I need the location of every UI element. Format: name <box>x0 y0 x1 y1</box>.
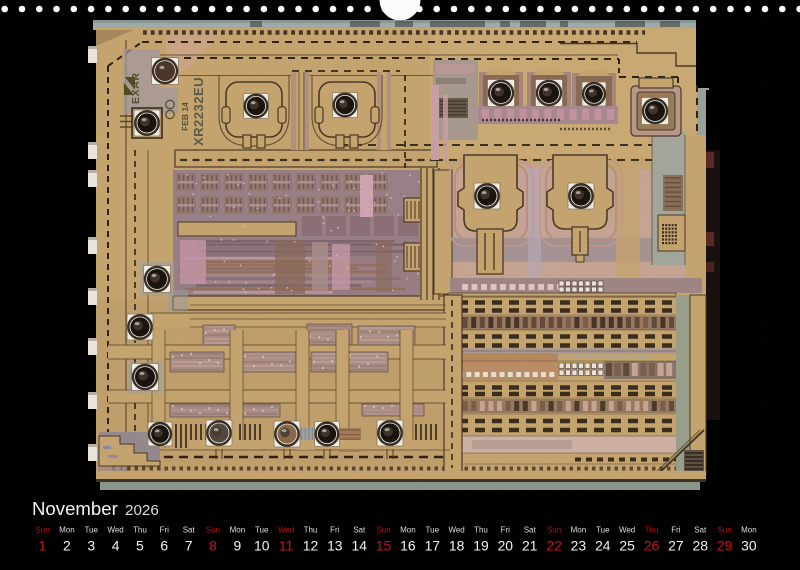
svg-text:Thu: Thu <box>133 526 147 535</box>
svg-text:9: 9 <box>234 538 242 554</box>
svg-text:8: 8 <box>209 538 217 554</box>
svg-text:Wed: Wed <box>107 526 123 535</box>
svg-text:Sun: Sun <box>717 526 731 535</box>
svg-text:25: 25 <box>619 538 635 554</box>
svg-text:12: 12 <box>303 538 319 554</box>
svg-text:26: 26 <box>644 538 660 554</box>
svg-text:14: 14 <box>351 538 367 554</box>
svg-text:Mon: Mon <box>230 526 246 535</box>
svg-text:November: November <box>32 498 118 519</box>
svg-text:16: 16 <box>400 538 416 554</box>
svg-text:Mon: Mon <box>741 526 757 535</box>
svg-text:Sun: Sun <box>547 526 561 535</box>
svg-text:28: 28 <box>692 538 708 554</box>
svg-text:Sat: Sat <box>183 526 196 535</box>
svg-text:Tue: Tue <box>426 526 440 535</box>
svg-text:Sun: Sun <box>376 526 390 535</box>
svg-text:4: 4 <box>112 538 120 554</box>
svg-text:18: 18 <box>449 538 465 554</box>
svg-text:Wed: Wed <box>278 526 294 535</box>
svg-text:Sat: Sat <box>694 526 707 535</box>
svg-text:Wed: Wed <box>619 526 635 535</box>
svg-text:19: 19 <box>473 538 489 554</box>
svg-text:Thu: Thu <box>304 526 318 535</box>
svg-text:7: 7 <box>185 538 193 554</box>
svg-text:Mon: Mon <box>571 526 587 535</box>
svg-text:6: 6 <box>160 538 168 554</box>
svg-text:2: 2 <box>63 538 71 554</box>
svg-text:5: 5 <box>136 538 144 554</box>
svg-text:21: 21 <box>522 538 538 554</box>
svg-text:Tue: Tue <box>596 526 610 535</box>
svg-text:11: 11 <box>279 538 294 554</box>
svg-text:13: 13 <box>327 538 343 554</box>
svg-text:Sun: Sun <box>206 526 220 535</box>
svg-text:23: 23 <box>571 538 587 554</box>
svg-text:Fri: Fri <box>160 526 170 535</box>
svg-text:Fri: Fri <box>671 526 681 535</box>
svg-text:3: 3 <box>87 538 95 554</box>
svg-text:24: 24 <box>595 538 611 554</box>
svg-text:Mon: Mon <box>59 526 75 535</box>
svg-text:30: 30 <box>741 538 757 554</box>
svg-text:10: 10 <box>254 538 270 554</box>
svg-text:Sun: Sun <box>35 526 49 535</box>
svg-text:Fri: Fri <box>330 526 340 535</box>
svg-text:Tue: Tue <box>255 526 269 535</box>
svg-text:Sat: Sat <box>353 526 366 535</box>
svg-text:1: 1 <box>39 538 47 554</box>
svg-text:22: 22 <box>546 538 562 554</box>
svg-text:2026: 2026 <box>125 502 159 519</box>
svg-text:29: 29 <box>717 538 733 554</box>
svg-text:Wed: Wed <box>448 526 464 535</box>
svg-text:Thu: Thu <box>474 526 488 535</box>
svg-text:20: 20 <box>498 538 514 554</box>
svg-text:Tue: Tue <box>84 526 98 535</box>
svg-text:Sat: Sat <box>524 526 537 535</box>
svg-text:17: 17 <box>425 538 441 554</box>
svg-text:Fri: Fri <box>501 526 511 535</box>
svg-text:Mon: Mon <box>400 526 416 535</box>
svg-text:Thu: Thu <box>645 526 659 535</box>
svg-text:15: 15 <box>376 538 392 554</box>
svg-text:27: 27 <box>668 538 684 554</box>
